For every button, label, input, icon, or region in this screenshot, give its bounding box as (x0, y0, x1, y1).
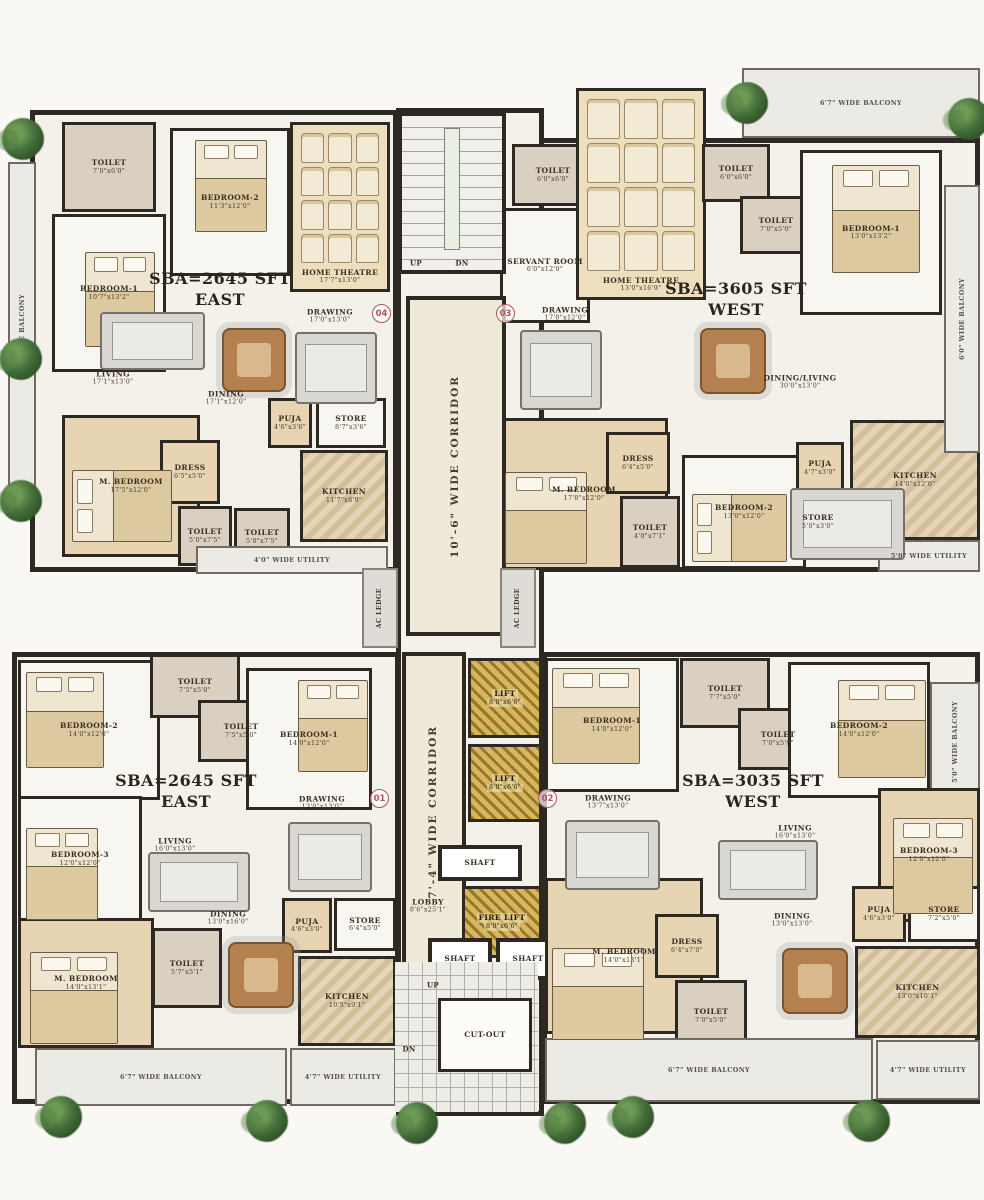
bl-dining-dims: 13'0"x16'0" (208, 919, 249, 927)
room-bl-dining: DINING13'0"x16'0" (208, 909, 249, 926)
br-bedroom-3-dims: 12'0"x12'0" (909, 856, 950, 864)
unit-top-right-title: SBA=3605 SFTWEST (665, 279, 807, 321)
room-br-drawing: DRAWING13'7"x13'0" (585, 793, 631, 810)
tree-plant (396, 1102, 438, 1144)
unit-number-badge: 03 (496, 304, 515, 323)
unit-top-left-sba: SBA=2645 SFT (149, 269, 291, 290)
dining-table (700, 328, 766, 394)
tr-toilet-1-dims: 6'0"x6'0" (537, 176, 569, 184)
tl-kitchen-dims: 11'7"x8'9" (326, 497, 362, 505)
tr-balcony-top-label: 6'7" WIDE BALCONY (820, 99, 902, 107)
unit-top-right-direction: WEST (665, 300, 807, 321)
room-tl-drawing: DRAWING17'0"x13'0" (307, 307, 353, 324)
bed-detail (849, 685, 879, 700)
tree-plant (2, 118, 44, 160)
room-core-up-top: UP (410, 260, 422, 269)
bed-detail (27, 711, 103, 767)
unit-bottom-right-title: SBA=3035 SFTWEST (682, 771, 824, 813)
bl-toilet-3-dims: 5'7"x5'1" (171, 969, 203, 977)
unit-number-badge: 04 (372, 304, 391, 323)
br-dining-dims: 13'0"x13'0" (772, 921, 813, 929)
tree-plant (848, 1100, 890, 1142)
tr-dining-living-dims: 30'0"x13'0" (764, 383, 837, 391)
core-lift-2-dims: 8'0"x6'6" (487, 784, 523, 792)
room-core-lift-1: LIFT8'0"x6'6" (468, 658, 542, 738)
theatre-seat (356, 167, 379, 197)
tr-utility-label: 5'0" WIDE UTILITY (891, 552, 967, 560)
theatre-seat (301, 167, 324, 197)
core-corridor-top-vertical-text: 10'-6" WIDE CORRIDOR (449, 375, 462, 558)
bed-detail (123, 257, 147, 272)
room-br-utility: 4'7" WIDE UTILITY (876, 1040, 980, 1100)
unit-top-left-title: SBA=2645 SFTEAST (149, 269, 291, 311)
unit-bottom-left-direction: EAST (115, 792, 257, 813)
bed-furniture (832, 165, 920, 273)
theatre-seat (662, 99, 695, 139)
br-puja-dims: 4'6"x3'0" (863, 915, 895, 923)
tl-dress-dims: 6'5"x5'0" (174, 473, 206, 481)
bed-detail (885, 685, 915, 700)
core-ac-ledge-right-label: AC LEDGE (514, 588, 522, 628)
bl-bedroom-1-dims: 14'0"x12'0" (289, 740, 330, 748)
unit-number-badge: 02 (538, 789, 557, 808)
tl-toilet-3-dims: 5'0"x7'5" (246, 538, 278, 546)
tl-toilet-2-dims: 5'0"x7'5" (189, 537, 221, 545)
theatre-seat (587, 187, 620, 227)
bed-detail (516, 477, 544, 492)
bed-detail (68, 677, 94, 692)
theatre-seat (624, 99, 657, 139)
bed-detail (307, 685, 331, 700)
tr-toilet-3-dims: 7'0"x5'0" (760, 226, 792, 234)
sofa (148, 852, 250, 912)
core-shaft-2-label: SHAFT (444, 954, 475, 963)
theatre-seat (301, 234, 324, 264)
bl-bedroom-3-dims: 12'0"x12'0" (60, 860, 101, 868)
theatre-seats (301, 133, 379, 263)
core-dn-top-label: DN (455, 260, 468, 269)
core-ac-ledge-left-vertical-text: AC LEDGE (376, 588, 384, 628)
bed-detail (336, 685, 360, 700)
room-br-balcony-corner: 5'0" WIDE BALCONY (930, 682, 980, 802)
bl-store-dims: 6'4"x5'0" (349, 925, 381, 933)
tl-utility-label: 4'0" WIDE UTILITY (254, 556, 330, 564)
theatre-seat (301, 200, 324, 230)
room-br-dining: DINING13'0"x13'0" (772, 911, 813, 928)
tl-living-dims: 17'1"x13'0" (93, 379, 134, 387)
room-bl-living: LIVING16'0"x13'0" (155, 836, 196, 853)
br-balcony-corner-label: 5'0" WIDE BALCONY (951, 701, 959, 783)
br-bedroom-2-dims: 14'0"x12'0" (839, 731, 880, 739)
core-up-bottom-label: UP (427, 982, 439, 991)
tr-store-dims: 5'0"x3'0" (802, 523, 834, 531)
bed-detail (564, 953, 595, 968)
core-ac-ledge-right-vertical-text: AC LEDGE (514, 588, 522, 628)
room-br-living: LIVING16'0"x13'0" (775, 823, 816, 840)
theatre-seats (587, 99, 695, 271)
bed-detail (31, 990, 117, 1043)
br-balcony-corner-vertical-text: 5'0" WIDE BALCONY (951, 701, 959, 783)
theatre-seat (356, 234, 379, 264)
tree-plant (246, 1100, 288, 1142)
unit-bottom-left-title: SBA=2645 SFTEAST (115, 771, 257, 813)
tr-dress-dims: 6'4"x5'0" (622, 464, 654, 472)
theatre-seat (328, 133, 351, 163)
tree-plant (0, 480, 42, 522)
room-core-ac-ledge-left: AC LEDGE (362, 568, 398, 648)
theatre-seat (356, 133, 379, 163)
tl-m-bedroom-dims: 17'5"x12'0" (111, 487, 152, 495)
tl-home-theatre-dims: 17'7"x13'0" (320, 277, 361, 285)
room-tr-balcony-right: 6'0" WIDE BALCONY (944, 185, 980, 453)
bed-detail (77, 957, 107, 972)
bed-detail (234, 145, 258, 160)
room-tr-toilet-4: TOILET4'0"x7'1" (620, 496, 680, 568)
unit-top-right-sba: SBA=3605 SFT (665, 279, 807, 300)
core-cut-out-label: CUT-OUT (464, 1030, 505, 1039)
bed-furniture (26, 828, 98, 920)
dining-table (222, 328, 286, 392)
br-kitchen-dims: 13'0"x10'1" (897, 993, 938, 1001)
room-core-corridor-bottom: 7'-4" WIDE CORRIDOR (402, 652, 466, 972)
room-bl-drawing: DRAWING13'0"x13'0" (299, 794, 345, 811)
theatre-seat (328, 167, 351, 197)
bed-detail (65, 833, 89, 848)
core-lift-1-dims: 8'0"x6'6" (487, 699, 523, 707)
dining-table (782, 948, 848, 1014)
bl-drawing-dims: 13'0"x13'0" (299, 804, 345, 812)
bed-detail (94, 257, 118, 272)
room-tl-living: LIVING17'1"x13'0" (93, 369, 134, 386)
core-corridor-top-label: 10'-6" WIDE CORRIDOR (449, 375, 462, 558)
room-core-shaft-1: SHAFT (438, 845, 522, 881)
bed-detail (697, 503, 712, 526)
theatre-seat (356, 200, 379, 230)
bed-detail (563, 673, 593, 688)
bed-furniture (298, 680, 368, 772)
room-bl-utility: 4'7" WIDE UTILITY (290, 1048, 396, 1106)
room-tl-dining: DINING17'1"x12'0" (206, 389, 247, 406)
unit-bottom-right-direction: WEST (682, 792, 824, 813)
theatre-seat (624, 143, 657, 183)
br-m-bedroom-dims: 14'0"x13'1" (604, 957, 645, 965)
bed-detail (506, 510, 586, 563)
room-br-dress: DRESS6'4"x7'0" (655, 914, 719, 978)
bed-detail (553, 986, 643, 1039)
room-tl-home-theatre: HOME THEATRE17'7"x13'0" (290, 122, 390, 292)
sofa (565, 820, 660, 890)
room-core-cut-out: CUT-OUT (438, 998, 532, 1072)
theatre-seat (662, 143, 695, 183)
tl-store-dims: 8'7"x3'6" (335, 424, 367, 432)
sofa (718, 840, 818, 900)
bed-detail (27, 866, 97, 919)
tl-toilet-1-dims: 7'0"x6'0" (93, 168, 125, 176)
br-bedroom-1-dims: 14'0"x12'0" (592, 726, 633, 734)
br-toilet-3-dims: 7'0"x5'0" (695, 1017, 727, 1025)
theatre-seat (328, 200, 351, 230)
room-bl-toilet-3: TOILET5'7"x5'1" (152, 928, 222, 1008)
bed-detail (77, 509, 93, 533)
sofa (288, 822, 372, 892)
theatre-seat (662, 187, 695, 227)
br-balcony-label: 6'7" WIDE BALCONY (668, 1066, 750, 1074)
tr-toilet-4-dims: 4'0"x7'1" (634, 533, 666, 541)
bl-m-bedroom-dims: 14'0"x13'1" (66, 984, 107, 992)
tree-plant (40, 1096, 82, 1138)
room-core-corridor-top: 10'-6" WIDE CORRIDOR (406, 296, 506, 636)
br-dress-dims: 6'4"x7'0" (671, 947, 703, 955)
room-tr-drawing: DRAWING17'0"x12'0" (542, 305, 588, 322)
tree-plant (948, 98, 984, 140)
bed-furniture (30, 952, 118, 1044)
core-shaft-1-label: SHAFT (464, 858, 495, 867)
room-core-ac-ledge-right: AC LEDGE (500, 568, 536, 648)
room-tl-toilet-1: TOILET7'0"x6'0" (62, 122, 156, 212)
bed-furniture (26, 672, 104, 768)
room-br-kitchen: KITCHEN13'0"x10'1" (855, 946, 980, 1038)
bl-toilet-1-dims: 7'5"x5'0" (179, 687, 211, 695)
theatre-seat (662, 231, 695, 271)
bed-furniture (195, 140, 267, 232)
room-core-lobby: LOBBY8'6"x25'1" (410, 897, 446, 914)
bed-furniture (893, 818, 973, 914)
br-utility-label: 4'7" WIDE UTILITY (890, 1066, 966, 1074)
bed-detail (36, 677, 62, 692)
core-dn-bottom-label: DN (402, 1046, 415, 1055)
br-store-dims: 7'2"x5'0" (928, 915, 960, 923)
theatre-seat (328, 234, 351, 264)
tr-home-theatre-dims: 13'0"x16'9" (621, 285, 662, 293)
core-fire-lift-dims: 8'0"x6'6" (484, 923, 520, 931)
bed-detail (204, 145, 228, 160)
tr-bedroom-1-dims: 13'0"x13'2" (851, 233, 892, 241)
unit-bottom-right-sba: SBA=3035 SFT (682, 771, 824, 792)
theatre-seat (587, 143, 620, 183)
bed-detail (77, 479, 93, 503)
floor-plan: TOILET7'0"x6'0"BEDROOM-211'3"x12'0"HOME … (0, 0, 984, 1200)
sofa (520, 330, 602, 410)
tr-m-bedroom-dims: 17'0"x12'0" (564, 495, 605, 503)
bed-detail (35, 833, 59, 848)
theatre-seat (587, 231, 620, 271)
room-br-balcony: 6'7" WIDE BALCONY (545, 1038, 873, 1102)
theatre-seat (624, 187, 657, 227)
bl-living-dims: 16'0"x13'0" (155, 846, 196, 854)
room-core-lift-2: LIFT8'0"x6'6" (468, 744, 542, 822)
tr-kitchen-dims: 14'0"x12'0" (895, 481, 936, 489)
tr-toilet-2-dims: 6'0"x6'0" (720, 174, 752, 182)
bed-detail (697, 531, 712, 554)
room-tr-puja: PUJA4'7"x3'0" (796, 442, 844, 494)
room-tl-store: STORE8'7"x3'6" (316, 398, 386, 448)
room-bl-balcony: 6'7" WIDE BALCONY (35, 1048, 287, 1106)
tr-balcony-right-vertical-text: 6'0" WIDE BALCONY (958, 278, 966, 360)
bed-detail (843, 170, 873, 187)
room-core-stairs-top (398, 112, 506, 274)
br-living-dims: 16'0"x13'0" (775, 833, 816, 841)
room-core-dn-bottom: DN (402, 1046, 415, 1055)
br-toilet-2-dims: 7'0"x5'0" (762, 740, 794, 748)
theatre-seat (301, 133, 324, 163)
room-tr-toilet-2: TOILET6'0"x6'0" (702, 144, 770, 202)
bed-detail (879, 170, 909, 187)
tree-plant (612, 1096, 654, 1138)
tree-plant (544, 1102, 586, 1144)
unit-number-badge: 01 (370, 789, 389, 808)
bl-utility-label: 4'7" WIDE UTILITY (305, 1073, 381, 1081)
room-tl-puja: PUJA4'6"x3'6" (268, 398, 312, 448)
tl-bedroom-1-dims: 10'7"x13'2" (89, 294, 130, 302)
core-shaft-3-label: SHAFT (512, 954, 543, 963)
bl-kitchen-dims: 10'5"x9'1" (329, 1002, 365, 1010)
room-tl-utility: 4'0" WIDE UTILITY (196, 546, 388, 574)
tree-plant (0, 338, 42, 380)
room-bl-kitchen: KITCHEN10'5"x9'1" (298, 956, 396, 1046)
bl-balcony-label: 6'7" WIDE BALCONY (120, 1073, 202, 1081)
room-core-up-bottom: UP (427, 982, 439, 991)
core-lobby-dims: 8'6"x25'1" (410, 907, 446, 915)
bed-detail (41, 957, 71, 972)
tr-puja-dims: 4'7"x3'0" (804, 469, 836, 477)
room-tr-dining-living: DINING/LIVING30'0"x13'0" (764, 373, 837, 390)
unit-bottom-left-sba: SBA=2645 SFT (115, 771, 257, 792)
core-ac-ledge-left-label: AC LEDGE (376, 588, 384, 628)
bed-detail (903, 823, 930, 838)
dining-table (228, 942, 294, 1008)
room-tl-kitchen: KITCHEN11'7"x8'9" (300, 450, 388, 542)
tr-servant-room-dims: 6'0"x12'0" (527, 266, 563, 274)
room-core-dn-top: DN (455, 260, 468, 269)
room-bl-store: STORE6'4"x5'0" (334, 898, 396, 951)
tr-bedroom-2-dims: 13'0"x12'0" (724, 513, 765, 521)
core-up-top-label: UP (410, 260, 422, 269)
br-drawing-dims: 13'7"x13'0" (585, 803, 631, 811)
tr-balcony-right-label: 6'0" WIDE BALCONY (958, 278, 966, 360)
theatre-seat (587, 99, 620, 139)
tl-drawing-dims: 17'0"x13'0" (307, 317, 353, 325)
bl-toilet-2-dims: 7'5"x5'0" (225, 732, 257, 740)
br-toilet-1-dims: 7'7"x5'0" (709, 694, 741, 702)
tl-puja-dims: 4'6"x3'6" (274, 424, 306, 432)
bl-puja-dims: 4'6"x3'0" (291, 926, 323, 934)
room-tl-balcony: 5'0" WIDE BALCONY (8, 162, 36, 507)
theatre-seat (624, 231, 657, 271)
room-tr-home-theatre: HOME THEATRE13'0"x16'9" (576, 88, 706, 300)
bed-detail (936, 823, 963, 838)
tree-plant (726, 82, 768, 124)
sofa (100, 312, 205, 370)
sofa (295, 332, 377, 404)
tl-bedroom-2-dims: 11'3"x12'0" (210, 203, 251, 211)
bl-bedroom-2-dims: 14'0"x12'0" (69, 731, 110, 739)
bed-detail (599, 673, 629, 688)
tl-dining-dims: 17'1"x12'0" (206, 399, 247, 407)
tr-drawing-dims: 17'0"x12'0" (542, 315, 588, 323)
unit-top-left-direction: EAST (149, 290, 291, 311)
stair-rail (444, 128, 460, 250)
